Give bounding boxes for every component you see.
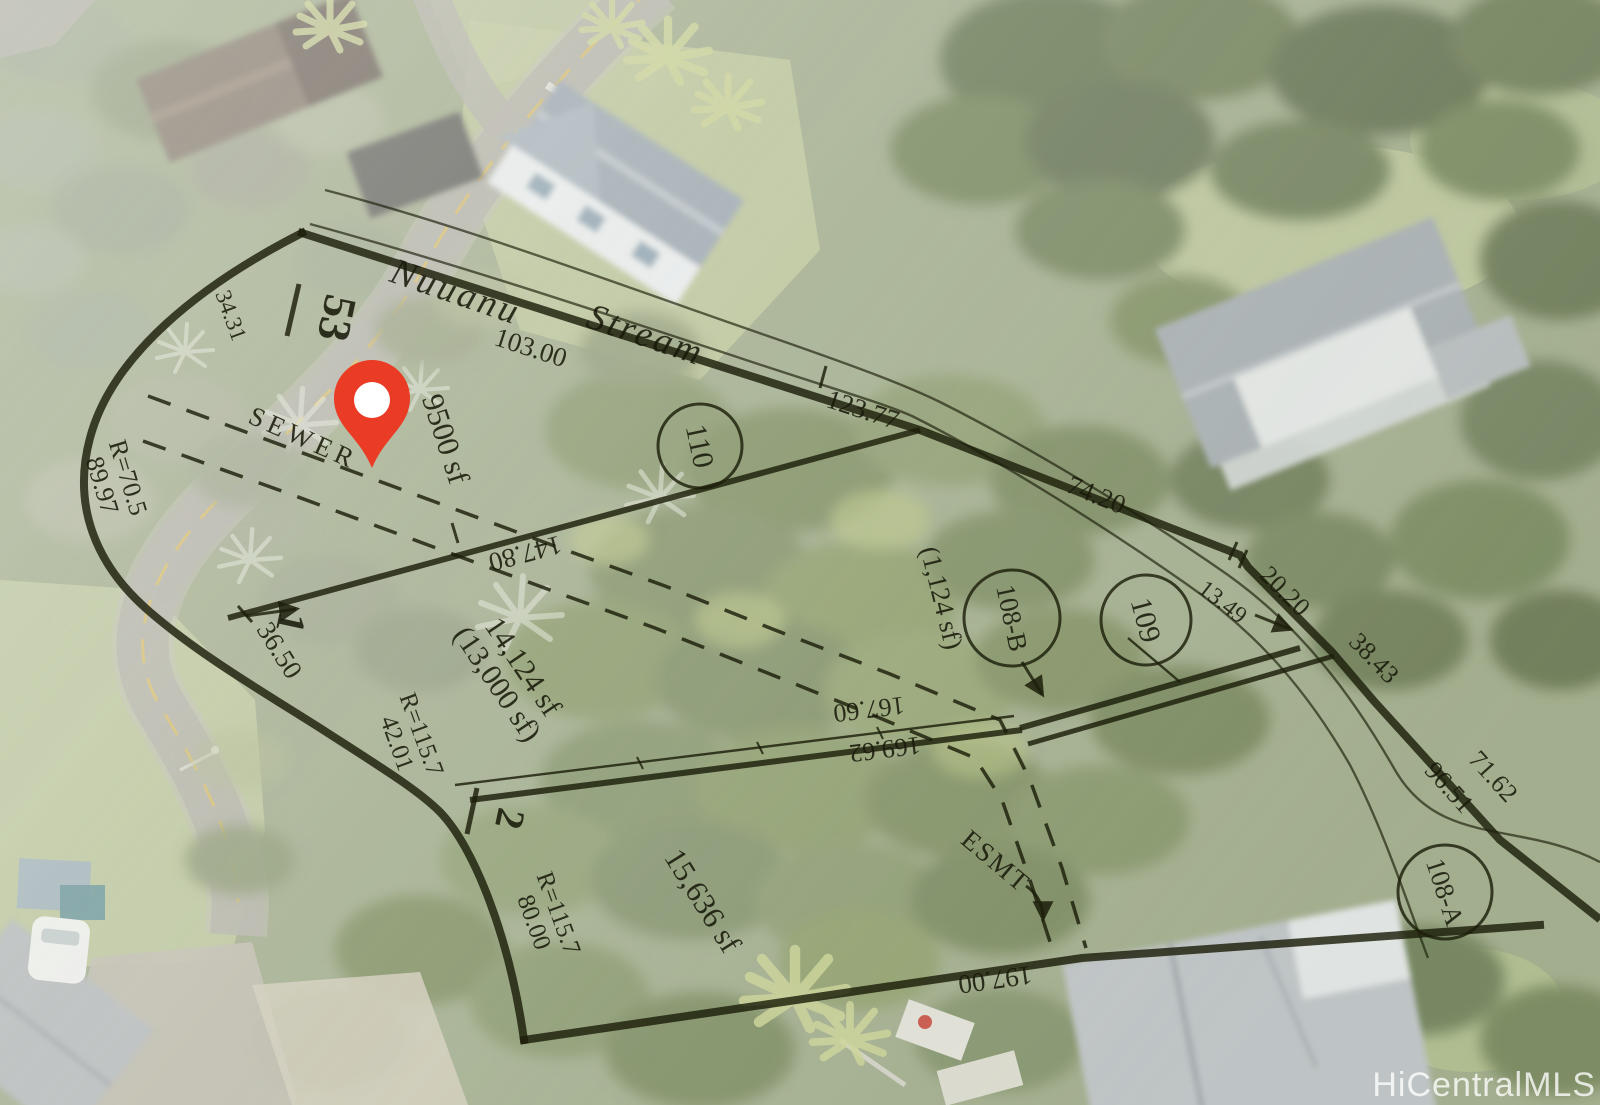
watermark: HiCentralMLS [1372, 1066, 1596, 1104]
map-canvas: Nuuanu Stream 53 9500 sf 34.31 103.00 12… [0, 0, 1600, 1105]
aerial-plat-map: Nuuanu Stream 53 9500 sf 34.31 103.00 12… [0, 0, 1600, 1105]
